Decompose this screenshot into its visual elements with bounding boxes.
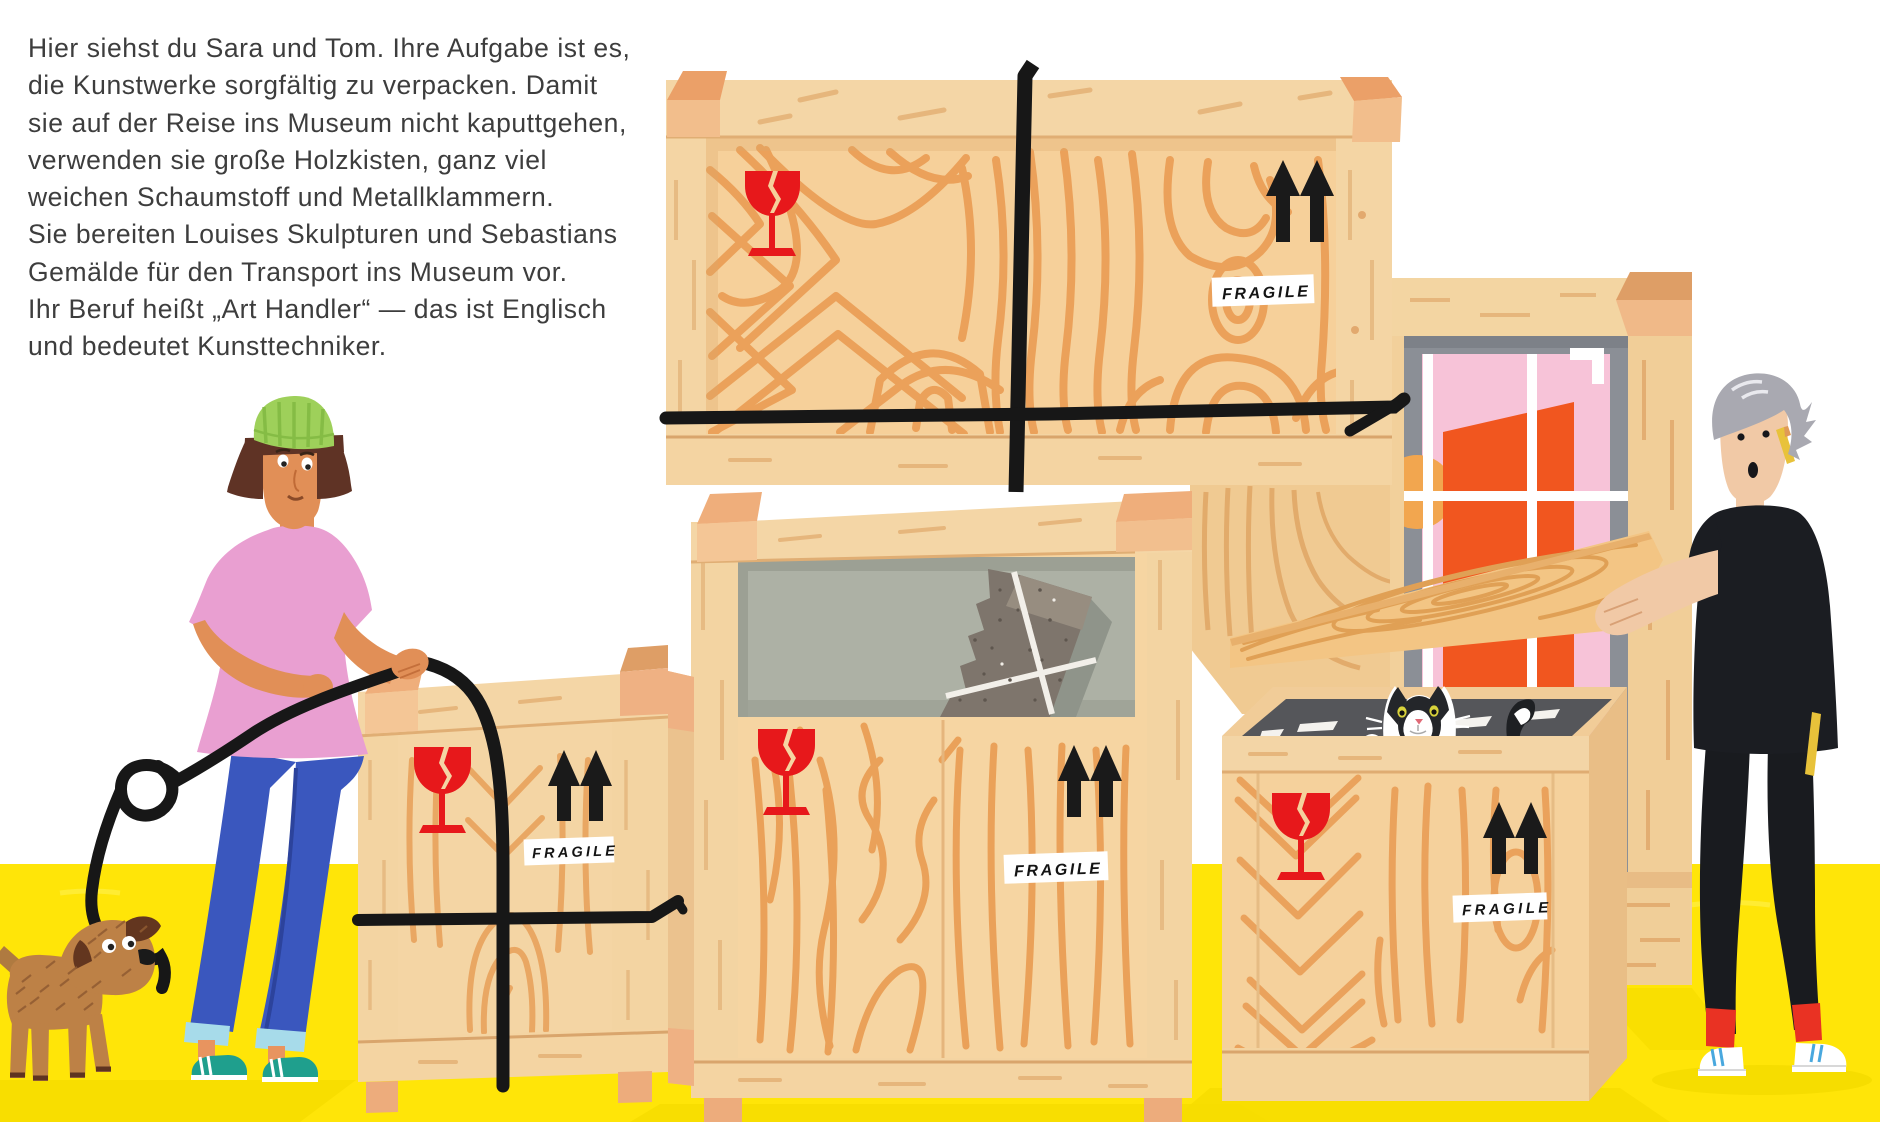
svg-text:FRAGILE: FRAGILE (532, 843, 619, 862)
svg-text:FRAGILE: FRAGILE (1222, 283, 1311, 303)
svg-text:FRAGILE: FRAGILE (1462, 899, 1552, 919)
svg-text:FRAGILE: FRAGILE (1014, 860, 1103, 880)
